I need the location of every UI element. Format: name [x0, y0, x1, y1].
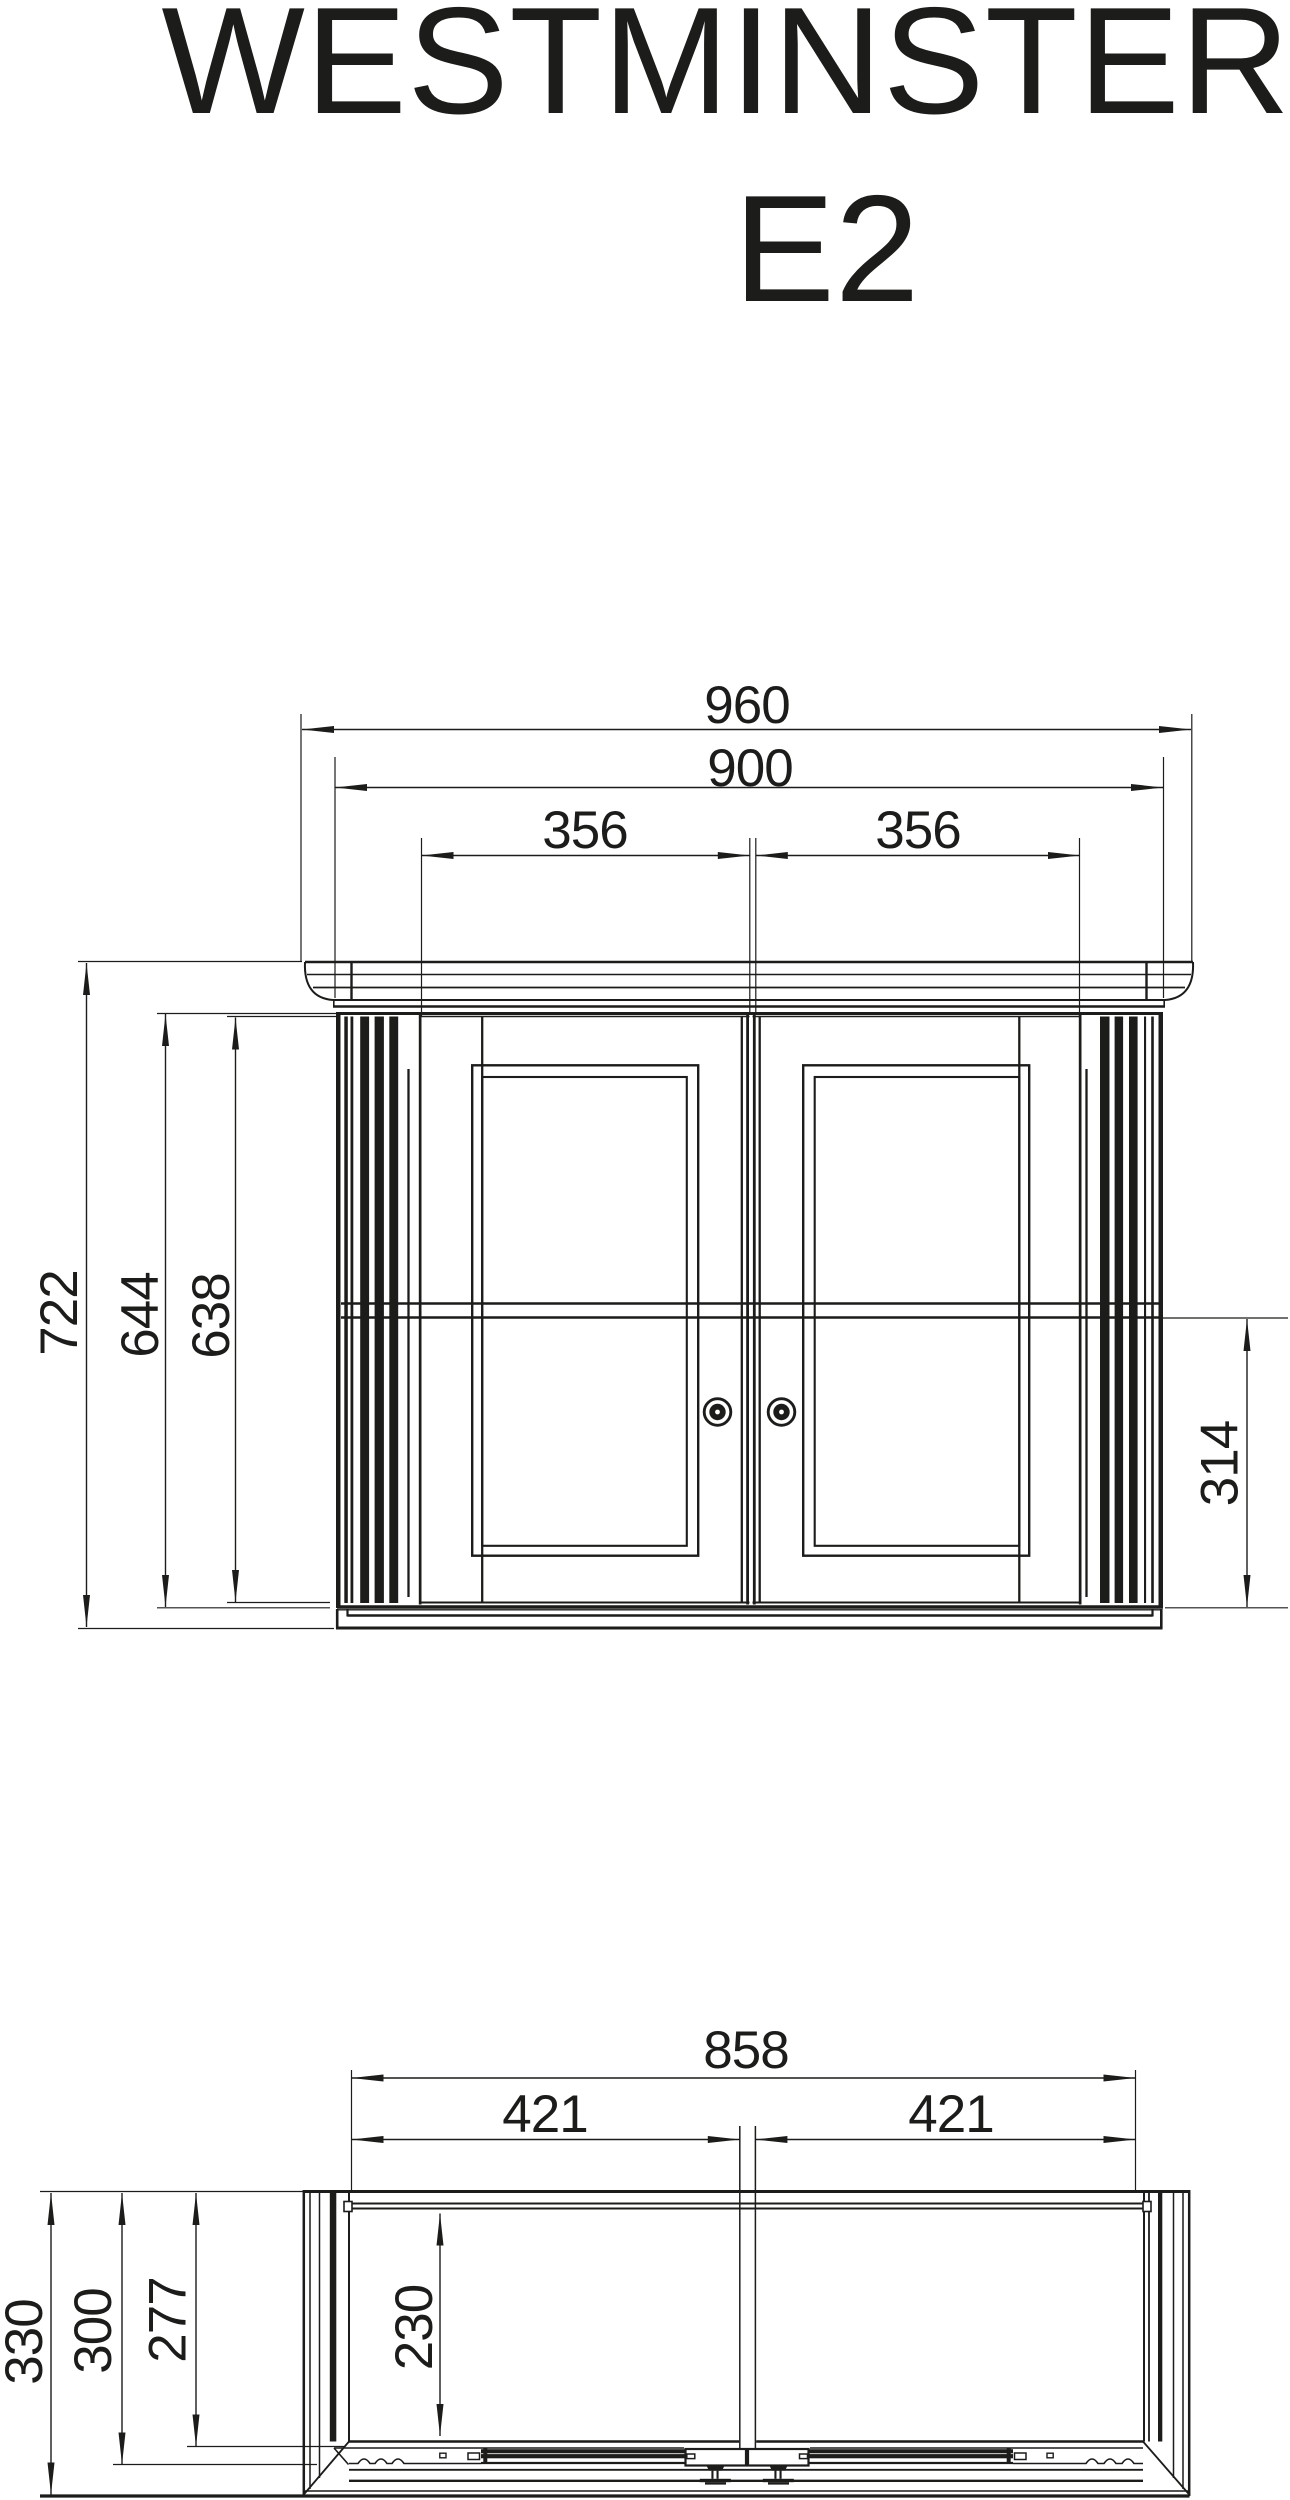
svg-text:722: 722 [30, 1270, 89, 1355]
svg-text:638: 638 [182, 1273, 241, 1358]
svg-text:230: 230 [385, 2285, 444, 2370]
svg-text:WESTMINSTER: WESTMINSTER [161, 0, 1290, 146]
svg-text:330: 330 [0, 2299, 54, 2384]
svg-text:644: 644 [111, 1272, 170, 1357]
svg-text:858: 858 [703, 2021, 788, 2080]
svg-text:421: 421 [908, 2085, 993, 2144]
svg-text:300: 300 [64, 2288, 123, 2373]
svg-text:314: 314 [1191, 1421, 1250, 1506]
svg-text:356: 356 [875, 801, 960, 860]
svg-text:960: 960 [704, 676, 789, 735]
svg-text:E2: E2 [734, 164, 920, 334]
svg-text:900: 900 [707, 739, 792, 798]
svg-text:277: 277 [139, 2277, 198, 2362]
svg-text:421: 421 [502, 2085, 587, 2144]
svg-text:356: 356 [542, 801, 627, 860]
